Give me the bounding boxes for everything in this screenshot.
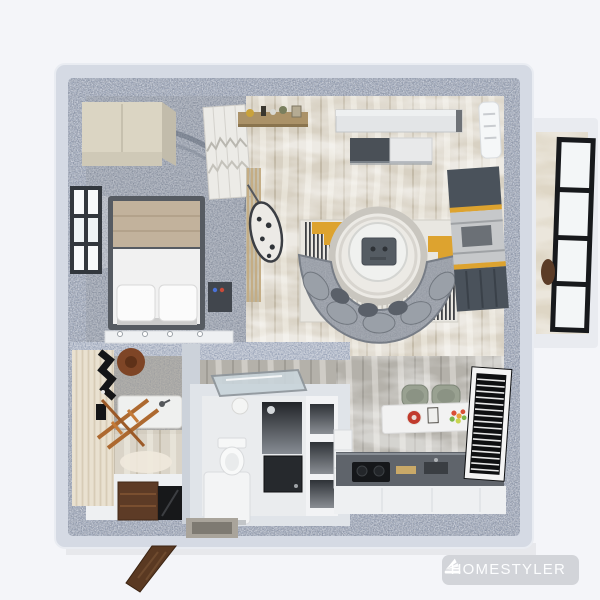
wc-room [190, 370, 350, 526]
floorplan-render: HOMESTYLER [0, 0, 600, 600]
appliance-knob [294, 484, 298, 488]
bedside-table [208, 282, 232, 312]
table-art [428, 408, 439, 423]
sink [424, 462, 448, 474]
wall-niche [310, 442, 334, 474]
coffee-table [349, 223, 407, 281]
hat-crown [125, 356, 137, 368]
dining-bar [382, 402, 475, 433]
homestyler-logo-icon [442, 555, 464, 577]
table-tray [362, 238, 396, 265]
bath-mat [120, 451, 172, 473]
wood-vanity [118, 482, 158, 520]
balcony-window-glass [553, 139, 594, 330]
bathroom [72, 348, 182, 520]
watermark: HOMESTYLER [442, 555, 579, 585]
tub-counter [118, 396, 182, 428]
window-mullion [554, 283, 588, 284]
shower-head [267, 406, 275, 414]
tv-panel [336, 110, 462, 132]
threshold-inner [192, 522, 232, 534]
tv-cabinet [350, 138, 432, 165]
bed-pillow [117, 285, 155, 321]
rack-hook [101, 390, 105, 394]
throw-pillow [358, 303, 378, 317]
balcony [528, 118, 598, 348]
low-shelf [105, 331, 233, 343]
window-mullion [556, 237, 590, 238]
headboard [113, 201, 200, 247]
wardrobe [82, 102, 176, 166]
louvered-window [464, 367, 512, 482]
window-mullion [557, 189, 591, 190]
cutting-board [396, 466, 416, 474]
watermark-text: HOMESTYLER [451, 555, 566, 585]
burner [374, 466, 384, 476]
balcony-window [553, 139, 594, 330]
wall-niche [310, 480, 334, 508]
ceiling-lamp [232, 398, 248, 414]
sink-faucet [434, 458, 438, 462]
floorplan-canvas [0, 0, 600, 600]
desk-unit [447, 166, 509, 311]
wall-niche [310, 404, 334, 434]
toilet [218, 438, 246, 475]
balcony-chair [541, 259, 555, 285]
burner [357, 466, 367, 476]
double-bed [108, 196, 205, 330]
wall-rack-box [96, 404, 106, 420]
white-bench [204, 472, 250, 524]
bed-pillow [159, 285, 197, 321]
ac-unit [479, 102, 502, 159]
